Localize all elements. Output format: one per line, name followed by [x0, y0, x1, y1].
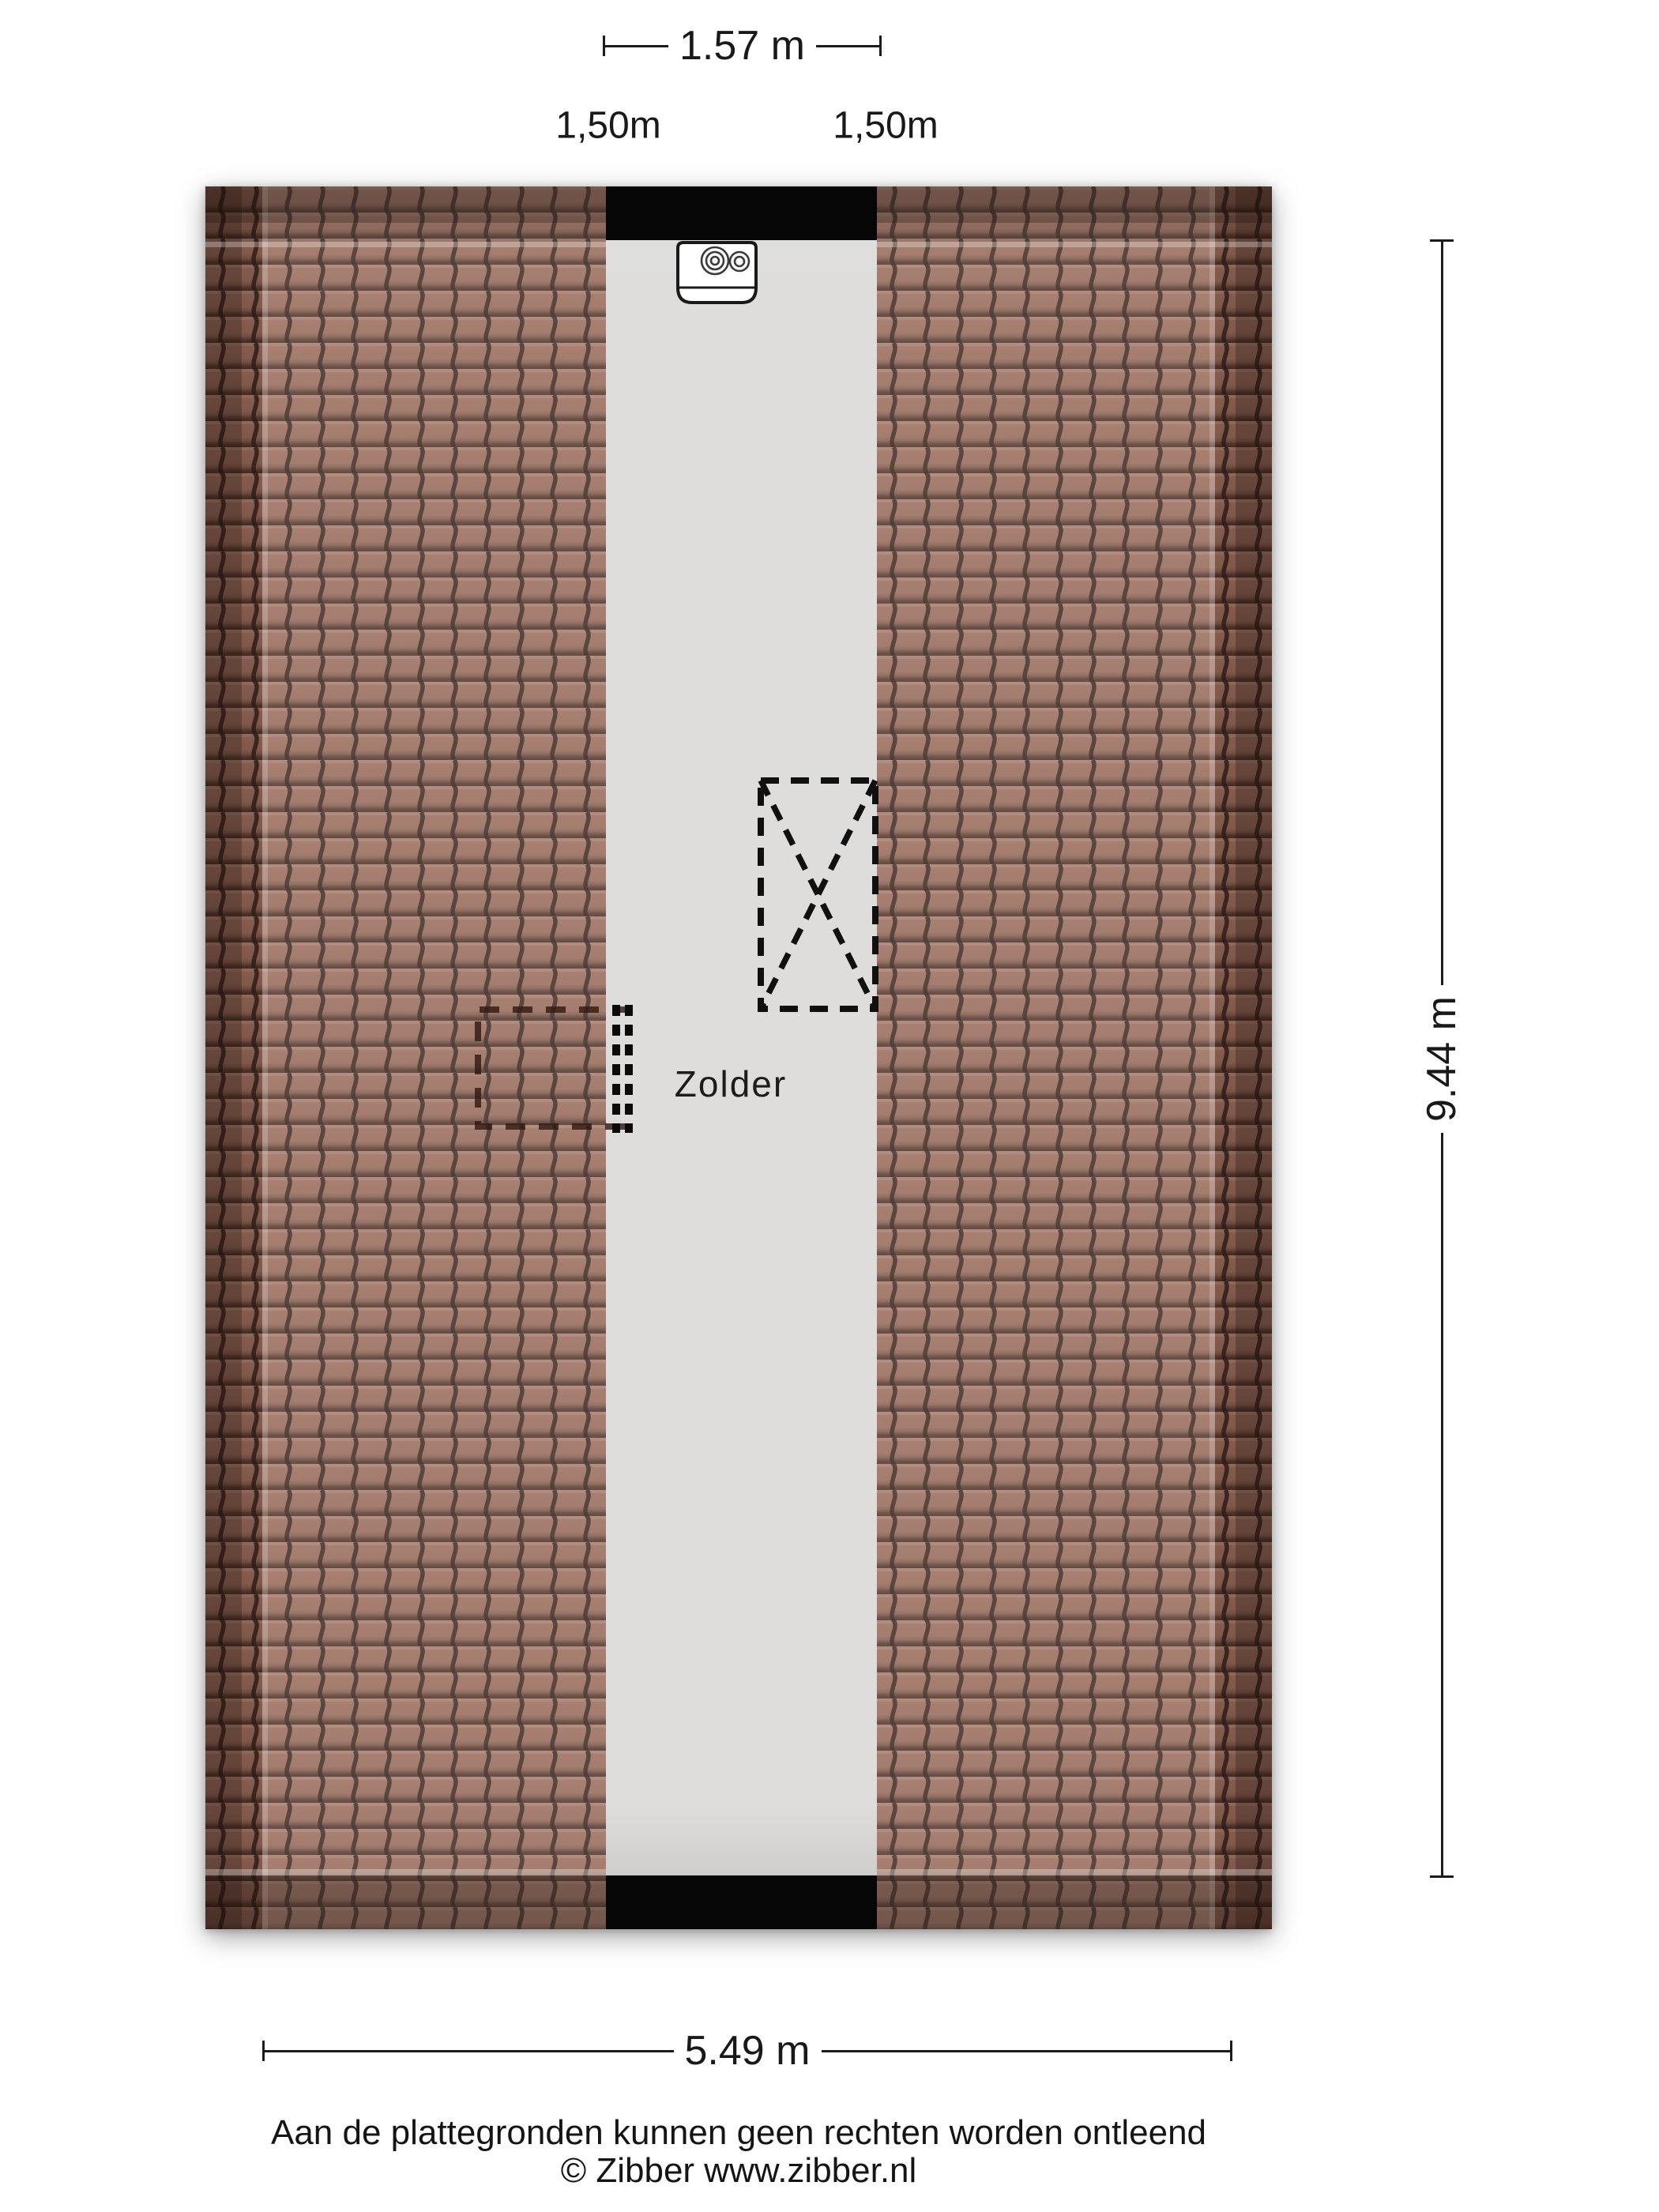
floorplan-page: 1.57 m 1,50m 1,50m [0, 0, 1659, 2212]
dimension-top-label: 1.57 m [668, 22, 816, 70]
dimension-line [605, 45, 668, 47]
dimension-line [822, 2050, 1231, 2052]
dimension-tick-right [1230, 2041, 1232, 2061]
dimension-line [265, 2050, 674, 2052]
dimension-right-label: 9.44 m [1418, 985, 1465, 1133]
dimension-line [816, 45, 879, 47]
dimension-line [1441, 1133, 1443, 1876]
plan-annotations [205, 186, 1272, 1929]
dimension-bottom-label: 5.49 m [674, 2027, 822, 2075]
roof-window-outline [478, 1005, 632, 1133]
dimension-top: 1.57 m [603, 21, 882, 70]
dimension-right: 9.44 m [1430, 239, 1454, 1878]
footer-copyright: © Zibber www.zibber.nl [205, 2152, 1272, 2190]
headroom-label-right: 1,50m [833, 104, 938, 148]
dimension-bottom: 5.49 m [262, 2026, 1232, 2075]
footer-disclaimer: Aan de plattegronden kunnen geen rechten… [205, 2114, 1272, 2152]
dimension-tick-bottom [1430, 1875, 1454, 1878]
headroom-label-left: 1,50m [555, 104, 660, 148]
footer: Aan de plattegronden kunnen geen rechten… [205, 2114, 1272, 2190]
room-label: Zolder [675, 1063, 787, 1105]
floorplan: Zolder [205, 186, 1272, 1929]
staircase-opening [761, 781, 875, 1009]
dimension-line [1441, 242, 1443, 985]
dimension-tick-right [879, 36, 882, 56]
